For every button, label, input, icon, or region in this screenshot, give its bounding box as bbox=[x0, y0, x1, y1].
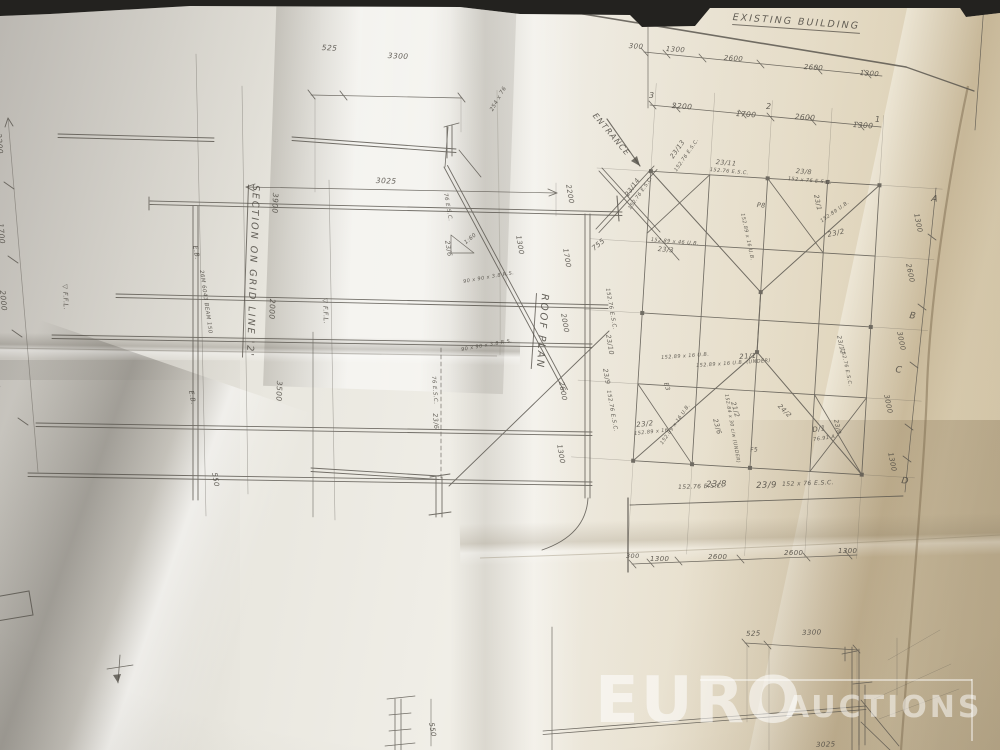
annotation-text: 152 x 76 E.S.C. bbox=[788, 177, 833, 186]
annotation-text: 23/6 bbox=[432, 413, 440, 430]
annotation-text: 3900 bbox=[271, 193, 279, 214]
annotation-text: 23/12 bbox=[864, 0, 879, 9]
photo-of-blueprint: EXISTING BUILDING30013002600260013003220… bbox=[0, 0, 1000, 750]
annotation-text: 2600 bbox=[794, 113, 815, 122]
annotation-text: 3500 bbox=[275, 381, 283, 402]
grid-letter-b: B bbox=[909, 312, 917, 322]
annotation-text: 24/2 bbox=[776, 403, 792, 419]
annotation-text: 90 x 90 x 3.8 R.S. bbox=[463, 271, 515, 285]
annotation-text: 1300 bbox=[650, 556, 669, 563]
annotation-text: 1300 bbox=[852, 121, 873, 130]
annotation-text: 1700 bbox=[735, 110, 756, 119]
annotation-text: 550 bbox=[210, 472, 219, 488]
annotation-text: 525 bbox=[746, 630, 761, 638]
annotation-text: 2600 bbox=[804, 64, 824, 72]
annotation-text: 23/8 bbox=[832, 419, 841, 435]
grid-number-1: 1 bbox=[875, 116, 881, 124]
annotation-text: 23/11 bbox=[715, 159, 736, 167]
annotation-text: 152.76 E.S.C. bbox=[604, 288, 617, 331]
annotation-text: 76 E.S.C. bbox=[442, 193, 452, 222]
annotation-text: 1300 bbox=[838, 548, 857, 555]
annotation-text: 23/3 bbox=[657, 246, 674, 254]
annotation-text: 23/2 bbox=[827, 228, 845, 238]
annotation-text: 2000 bbox=[559, 313, 569, 333]
section-title: SECTION ON GRID LINE '2' bbox=[242, 185, 260, 358]
grid-number-2: 2 bbox=[766, 103, 772, 111]
annotation-text: 23/1 bbox=[813, 194, 823, 211]
annotation-text: 1700 bbox=[561, 248, 571, 268]
annotation-text: 26M 6043 BEAM 150 bbox=[198, 270, 212, 334]
annotation-text: 152.89 x 16 U.B. bbox=[660, 403, 692, 445]
annotation-text: 254 x 76 bbox=[490, 86, 508, 113]
annotation-text: 2600 bbox=[784, 550, 803, 557]
annotation-text: F5 bbox=[750, 447, 759, 454]
annotation-text: 152.89 x 16 U.B. bbox=[661, 353, 709, 361]
annotation-text: 23/10 bbox=[605, 334, 615, 356]
annotation-text: 2000 bbox=[0, 290, 8, 311]
annotation-text: ▽ F.F.L. bbox=[322, 298, 329, 324]
annotation-text: 152.76 E.S.C. bbox=[605, 390, 618, 433]
annotation-text: 152.89 x 16 U.B. (UNDER) bbox=[696, 359, 771, 369]
annotation-text: ▽ F.F.L. bbox=[62, 284, 69, 310]
annotation-text: 1300 bbox=[886, 452, 897, 472]
annotation-text: 1:60 bbox=[464, 233, 478, 246]
existing-building-title: EXISTING BUILDING bbox=[732, 13, 860, 34]
annotation-text: E3 bbox=[662, 382, 670, 392]
annotation-text: 3000 bbox=[882, 394, 893, 414]
annotation-text: 3000 bbox=[895, 331, 906, 351]
annotation-text: 2600 bbox=[557, 381, 567, 401]
annotation-text: 76.91 A bbox=[813, 435, 836, 443]
annotation-text: 23/8 bbox=[706, 480, 727, 489]
annotation-text: 3025 bbox=[376, 177, 397, 185]
annotation-text: 152.89 x 16 U.B. bbox=[739, 213, 754, 261]
annotation-text: 152 x 76 E.S.C. bbox=[782, 480, 834, 488]
annotation-text: 3025 bbox=[816, 741, 836, 749]
annotation-text: 23/9 bbox=[602, 368, 611, 385]
drawing-paper: EXISTING BUILDING30013002600260013003220… bbox=[0, 0, 1000, 750]
annotation-text: 2200 bbox=[0, 133, 4, 154]
annotations-layer: EXISTING BUILDING30013002600260013003220… bbox=[0, 0, 1000, 750]
annotation-text: 23/2 bbox=[636, 420, 654, 429]
grid-number-3: 3 bbox=[649, 92, 655, 100]
annotation-text: 1300 bbox=[555, 444, 565, 464]
annotation-text: 550 bbox=[427, 722, 436, 738]
annotation-text: 2600 bbox=[708, 554, 727, 561]
grid-letter-c: C bbox=[895, 366, 903, 376]
annotation-text: 2600 bbox=[904, 263, 915, 283]
annotation-text: 1300 bbox=[912, 213, 923, 233]
annotation-text: 525 bbox=[322, 44, 338, 52]
annotation-text: 152.76 E.S.C. bbox=[839, 348, 852, 387]
annotation-text: E.B. bbox=[192, 245, 201, 260]
annotation-text: 76 E.S.C. bbox=[430, 376, 438, 405]
annotation-text: 1300 bbox=[860, 70, 880, 78]
grid-letter-a: A bbox=[931, 195, 939, 205]
roof-plan-title: ROOF PLAN bbox=[531, 293, 549, 369]
grid-letter-d: D bbox=[901, 477, 910, 487]
annotation-text: 23/6 bbox=[712, 418, 722, 435]
annotation-text: 152.76 E.S.C. bbox=[710, 168, 749, 176]
annotation-text: 2200 bbox=[671, 102, 692, 111]
annotation-text: 300 bbox=[626, 553, 640, 560]
annotation-text: E.B. bbox=[188, 390, 197, 405]
annotation-text: 2600 bbox=[0, 368, 1, 389]
annotation-text: 3300 bbox=[388, 52, 409, 61]
annotation-text: 2600 bbox=[724, 55, 744, 63]
annotation-text: 1700 bbox=[0, 223, 6, 244]
annotation-text: 2200 bbox=[564, 184, 574, 204]
entrance-label: ENTRANCE bbox=[591, 112, 631, 158]
annotation-text: 23/8 bbox=[795, 168, 812, 176]
annotation-text: 3300 bbox=[802, 629, 822, 637]
annotation-text: 23/9 bbox=[756, 481, 777, 490]
annotation-text: 2000 bbox=[268, 299, 276, 320]
annotation-text: 300 bbox=[629, 43, 644, 51]
annotation-text: 755 bbox=[591, 238, 607, 253]
annotation-text: 1300 bbox=[666, 46, 686, 54]
annotation-text: 1300 bbox=[514, 235, 524, 255]
annotation-text: 90 x 90 x 3.8 R.S. bbox=[461, 339, 513, 353]
annotation-text: 152.89 U.B. bbox=[820, 201, 851, 224]
annotation-text: D/1 bbox=[812, 425, 826, 434]
annotation-text: P8 bbox=[756, 202, 765, 209]
annotation-text: 23/6 bbox=[444, 240, 453, 257]
